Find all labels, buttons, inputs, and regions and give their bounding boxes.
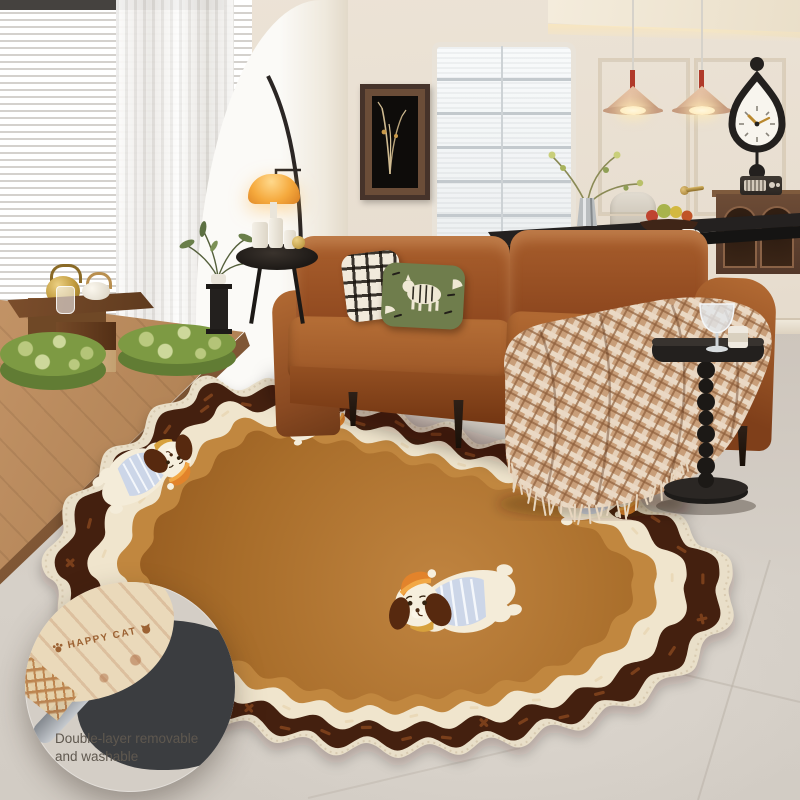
caption-line-1: Double-layer removable	[55, 730, 215, 748]
cat-face-icon	[139, 621, 153, 635]
living-room-product-photo: HAPPY CAT Double-layer removable and was…	[0, 0, 800, 800]
detail-callout-bubble: HAPPY CAT Double-layer removable and was…	[25, 582, 235, 792]
caption-line-2: and washable	[55, 748, 215, 766]
candle-jar	[728, 326, 748, 348]
callout-caption: Double-layer removable and washable	[55, 730, 215, 766]
bead-leg	[697, 361, 715, 488]
paw-icon	[51, 640, 65, 654]
